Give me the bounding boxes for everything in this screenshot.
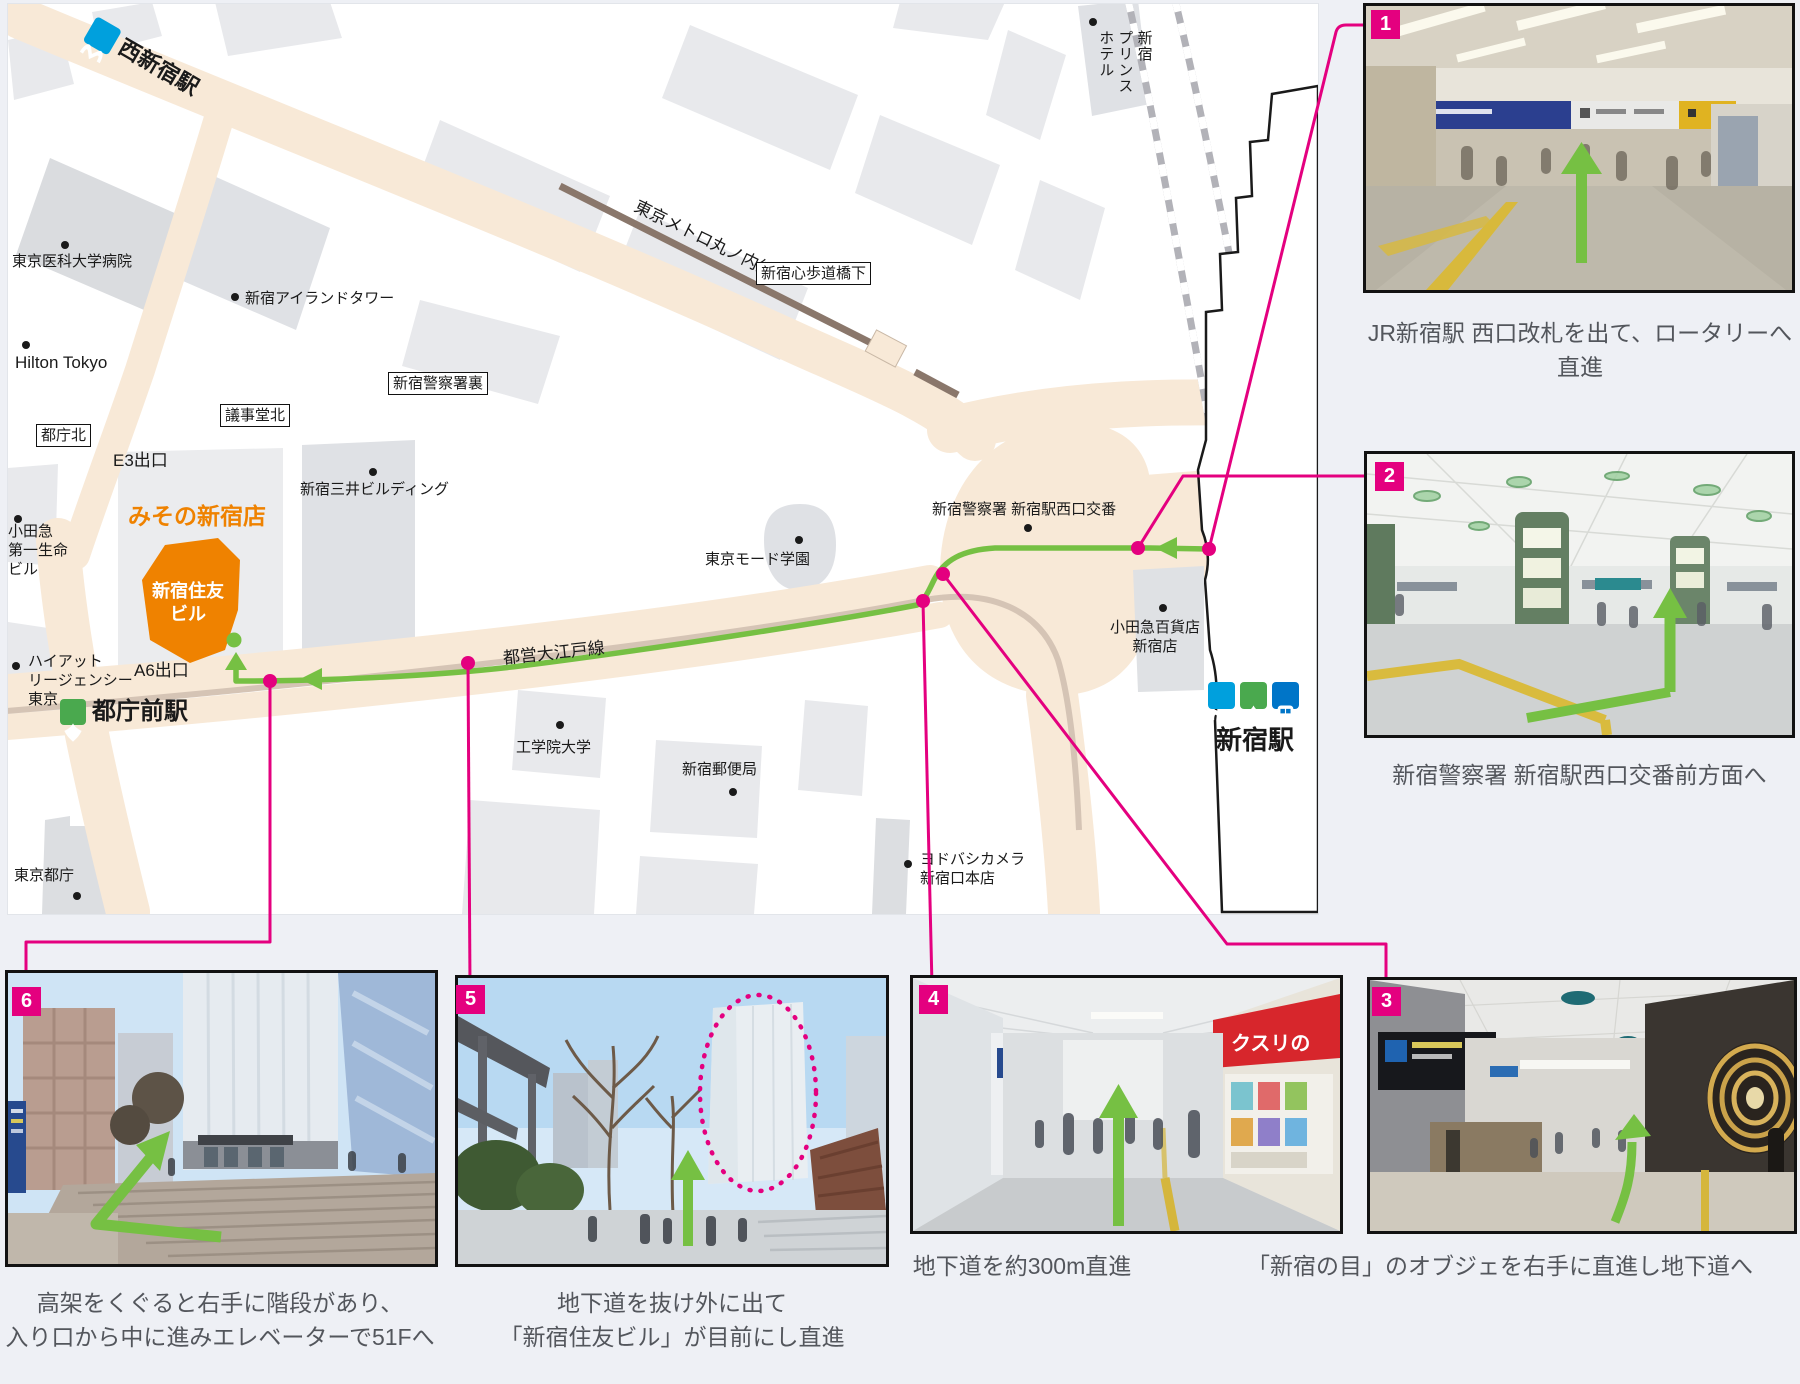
photo-step-6: [5, 970, 438, 1267]
label-mode-gakuen: 東京モード学園: [705, 550, 810, 569]
sumitomo-tower: [708, 1002, 808, 1184]
label-sumitomo-building: 新宿住友 ビル: [136, 580, 240, 625]
photo-step-4: クスリの: [910, 975, 1343, 1234]
label-misono-shinjuku: みその新宿店: [128, 502, 266, 531]
caption-step-2: 新宿警察署 新宿駅西口交番前方面へ: [1364, 758, 1795, 792]
label-kogakuin-univ: 工学院大学: [516, 738, 591, 757]
label-odakyu-daiichi-seimei: 小田急 第一生命 ビル: [8, 522, 68, 580]
step-badge-3: 3: [1372, 987, 1401, 1016]
photo-step-3: [1367, 977, 1797, 1234]
label-hilton-tokyo: Hilton Tokyo: [15, 352, 107, 374]
label-tokyo-tocho: 東京都庁: [14, 866, 74, 885]
caption-step-3: 「新宿の目」のオブジェを右手に直進し地下道へ: [1240, 1249, 1760, 1283]
sumitomo-tower-base: [183, 973, 338, 1170]
photo-6-illustration: [8, 973, 435, 1264]
hotel-tower: [23, 1008, 115, 1190]
caption-step-6: 高架をくぐると右手に階段があり、 入り口から中に進みエレベーターで51Fへ: [0, 1286, 440, 1354]
destination-dot: [227, 633, 242, 648]
toei-icon: [1240, 682, 1267, 709]
map-canvas: [8, 4, 1318, 914]
stairs: [8, 1173, 435, 1264]
photo-step-5: [455, 975, 889, 1267]
badge-number: 6: [21, 990, 32, 1013]
mode-gakuen-building: [764, 504, 836, 590]
label-prince-hotel: 新宿 プリンス ホテル: [1096, 30, 1154, 94]
toei-icon: [60, 699, 86, 725]
shinjuku-station-name: 新宿駅: [1216, 724, 1294, 757]
intersection-keisatsusho-ura: 新宿警察署裏: [388, 372, 488, 395]
shinjuku-station-building: [1198, 86, 1318, 912]
photo-5-illustration: [458, 978, 886, 1264]
label-exit-a6: A6出口: [134, 660, 189, 682]
step-badge-1: 1: [1371, 10, 1400, 39]
photo-step-2: [1364, 451, 1795, 738]
route-map: [8, 4, 1318, 914]
label-yodobashi: ヨドバシカメラ 新宿口本店: [920, 850, 1025, 888]
badge-number: 1: [1380, 13, 1391, 36]
step-badge-6: 6: [12, 987, 41, 1016]
label-post-office: 新宿郵便局: [682, 760, 757, 779]
label-police-box: 新宿警察署 新宿駅西口交番: [932, 500, 1116, 519]
shinjuku-station-icons: [1208, 682, 1299, 709]
station-sign-band: [1421, 101, 1736, 129]
access-map-page: 西新宿駅 東京メトロ丸ノ内線 新宿心歩道橋下 新宿警察署裏 議事堂北 都庁北 東…: [0, 0, 1800, 1384]
train-icon: [1272, 682, 1299, 709]
intersection-hodokyo-shita: 新宿心歩道橋下: [756, 262, 871, 285]
tokyo-metro-icon: [1208, 682, 1235, 709]
label-mitsui-building: 新宿三井ビルディング: [300, 480, 449, 499]
photo-2-illustration: [1367, 454, 1792, 735]
tochomae-station-label: 都庁前駅: [60, 697, 188, 728]
tochomae-station-name: 都庁前駅: [92, 697, 188, 728]
photo-1-illustration: [1366, 6, 1792, 290]
label-odakyu-dept: 小田急百貨店 新宿店: [1105, 618, 1205, 656]
intersection-gijido-kita: 議事堂北: [220, 404, 290, 427]
label-tokyo-medical-univ: 東京医科大学病院: [12, 252, 132, 271]
drugstore-sign-text: クスリの: [1231, 1032, 1310, 1055]
caption-step-5: 地下道を抜け外に出て 「新宿住友ビル」が目前にし直進: [448, 1286, 896, 1354]
photo-4-illustration: クスリの: [913, 978, 1340, 1231]
badge-number: 5: [465, 988, 476, 1011]
shop-shelves: [1225, 1074, 1333, 1174]
badge-number: 2: [1384, 465, 1395, 488]
badge-number: 4: [928, 988, 939, 1011]
step-badge-4: 4: [919, 985, 948, 1014]
badge-number: 3: [1381, 990, 1392, 1013]
step-badge-5: 5: [456, 985, 485, 1014]
step-badge-2: 2: [1375, 462, 1404, 491]
intersection-tocho-kita: 都庁北: [36, 424, 91, 447]
photo-step-1: [1363, 3, 1795, 293]
label-island-tower: 新宿アイランドタワー: [245, 289, 394, 308]
photo-3-illustration: [1370, 980, 1794, 1231]
caption-step-1: JR新宿駅 西口改札を出て、ロータリーへ直進: [1363, 316, 1797, 384]
label-exit-e3: E3出口: [113, 450, 168, 472]
